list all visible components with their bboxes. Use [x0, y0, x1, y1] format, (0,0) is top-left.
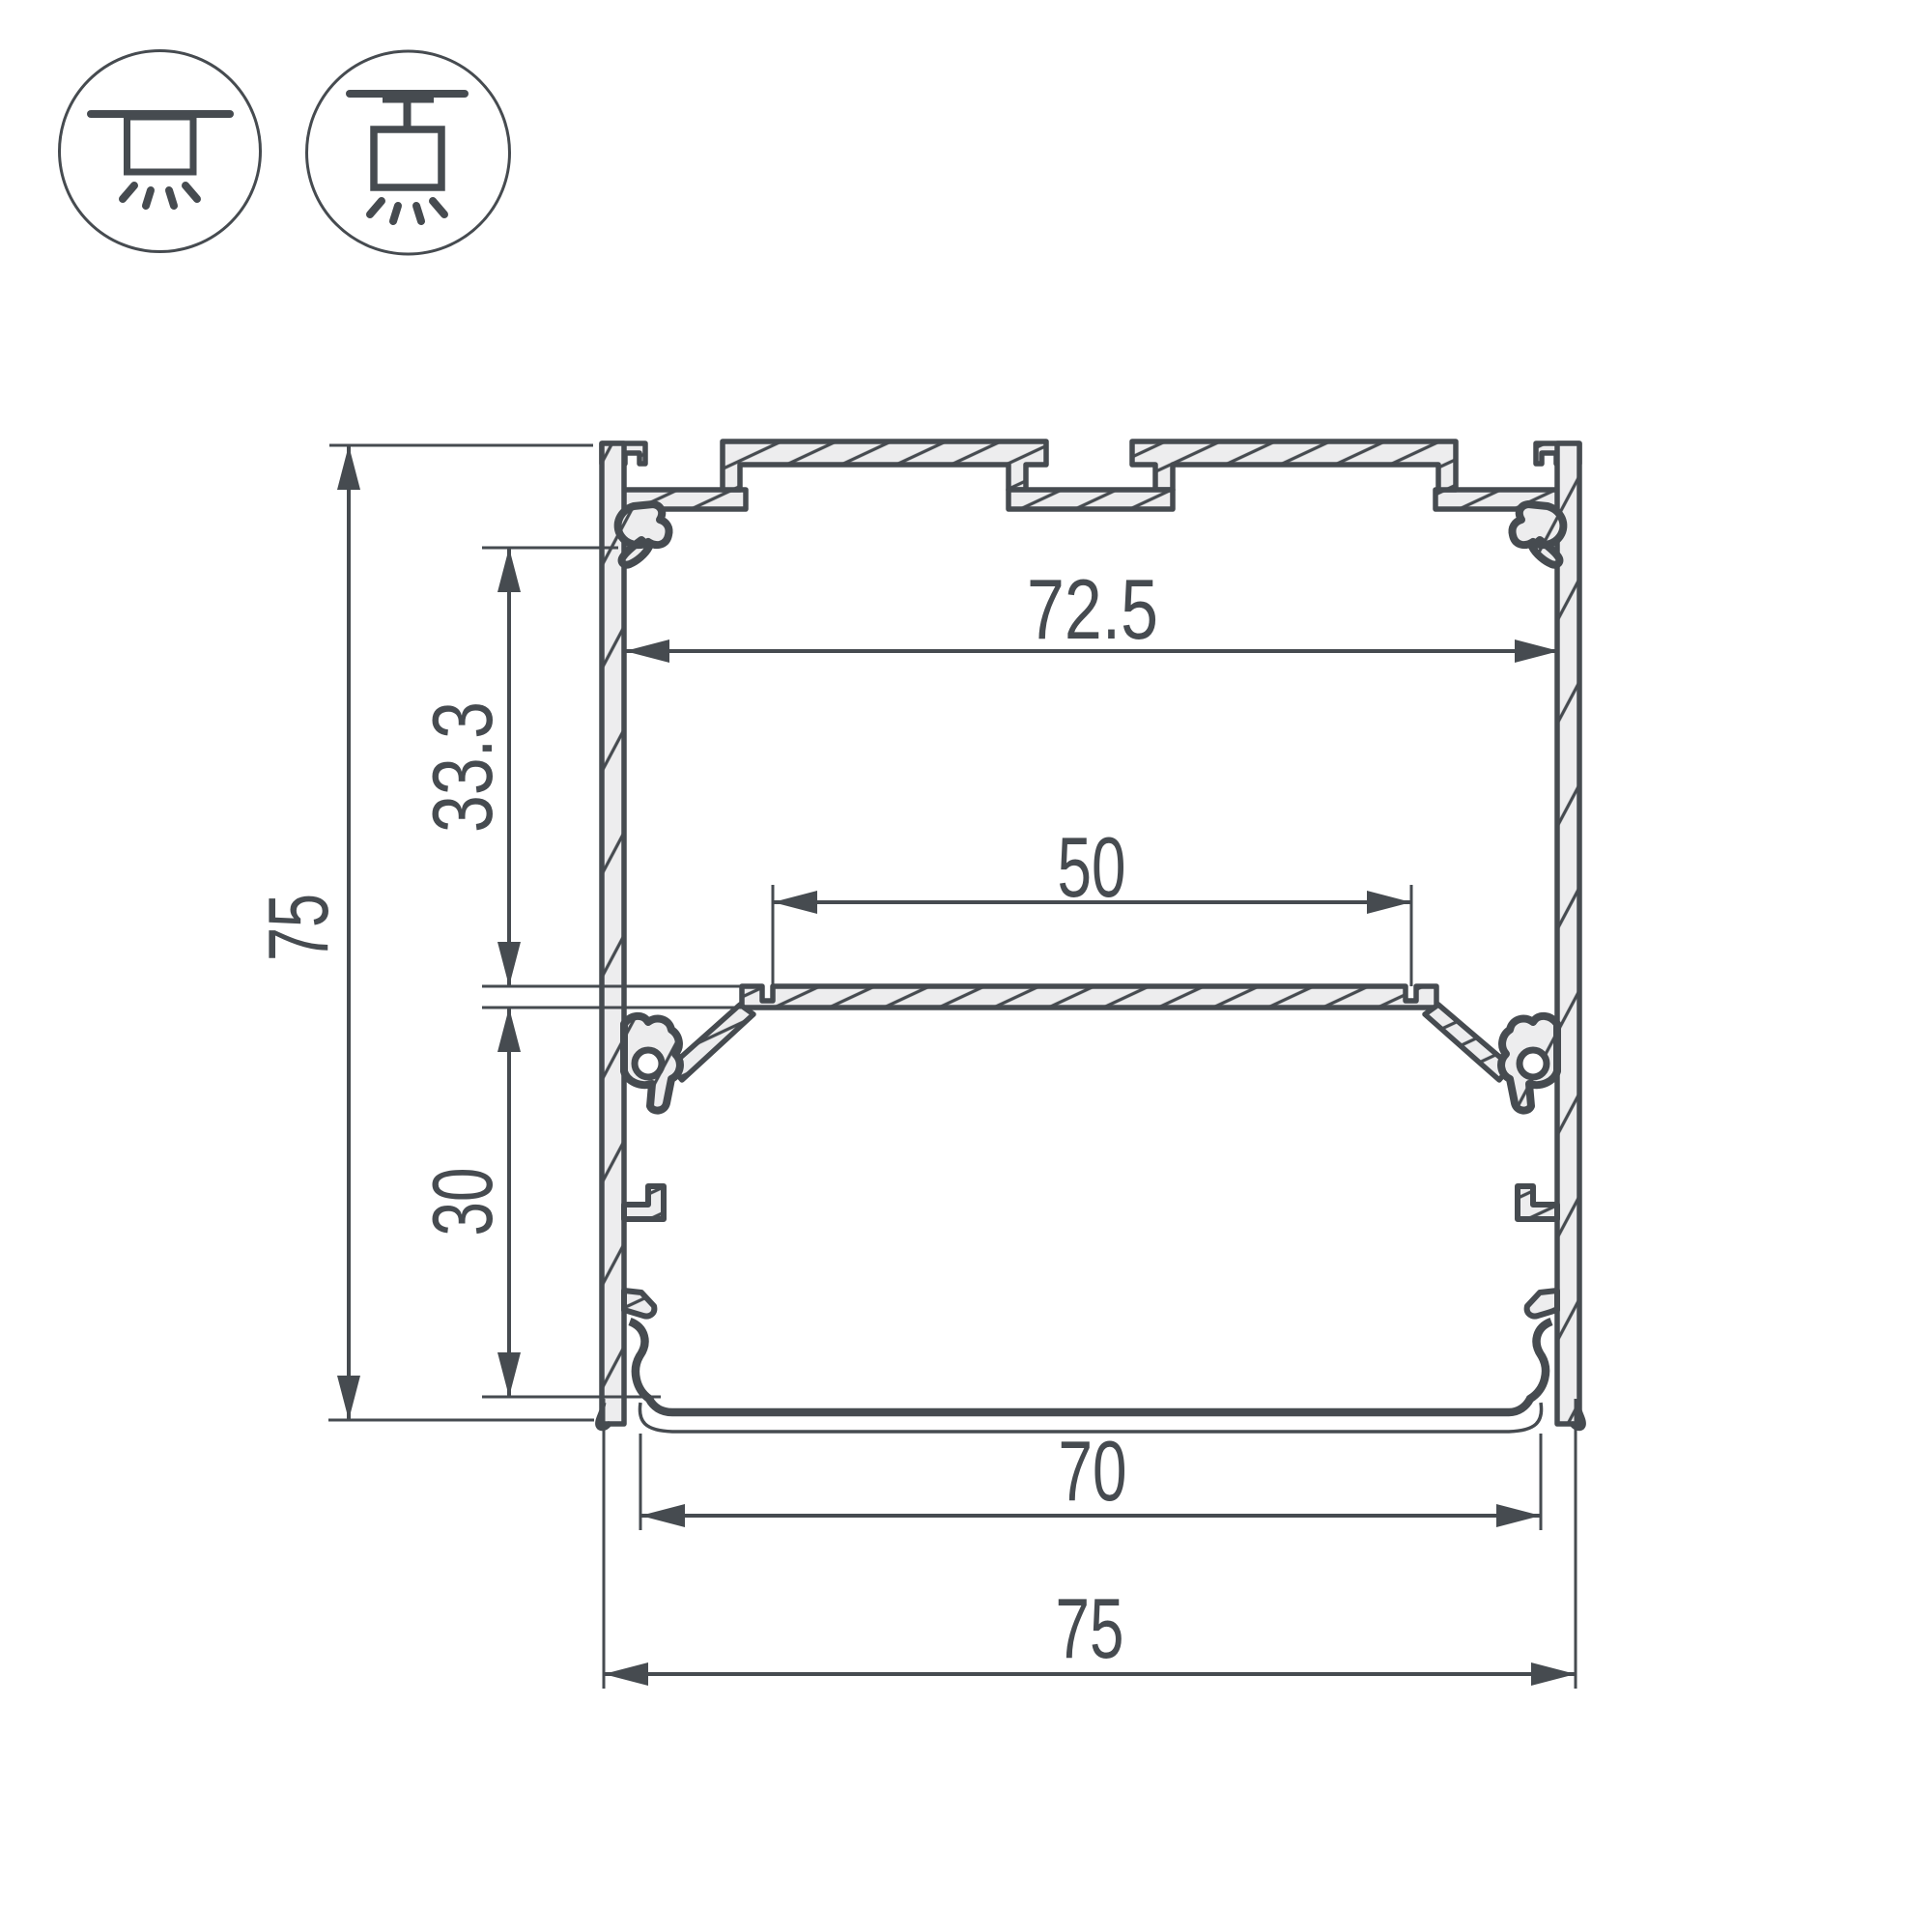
svg-text:75: 75	[1056, 1580, 1124, 1676]
svg-text:70: 70	[1059, 1423, 1127, 1519]
svg-text:50: 50	[1058, 819, 1126, 915]
svg-text:72.5: 72.5	[1027, 561, 1158, 657]
svg-text:75: 75	[250, 894, 346, 961]
svg-text:30: 30	[414, 1168, 510, 1236]
svg-text:33.3: 33.3	[414, 701, 510, 833]
